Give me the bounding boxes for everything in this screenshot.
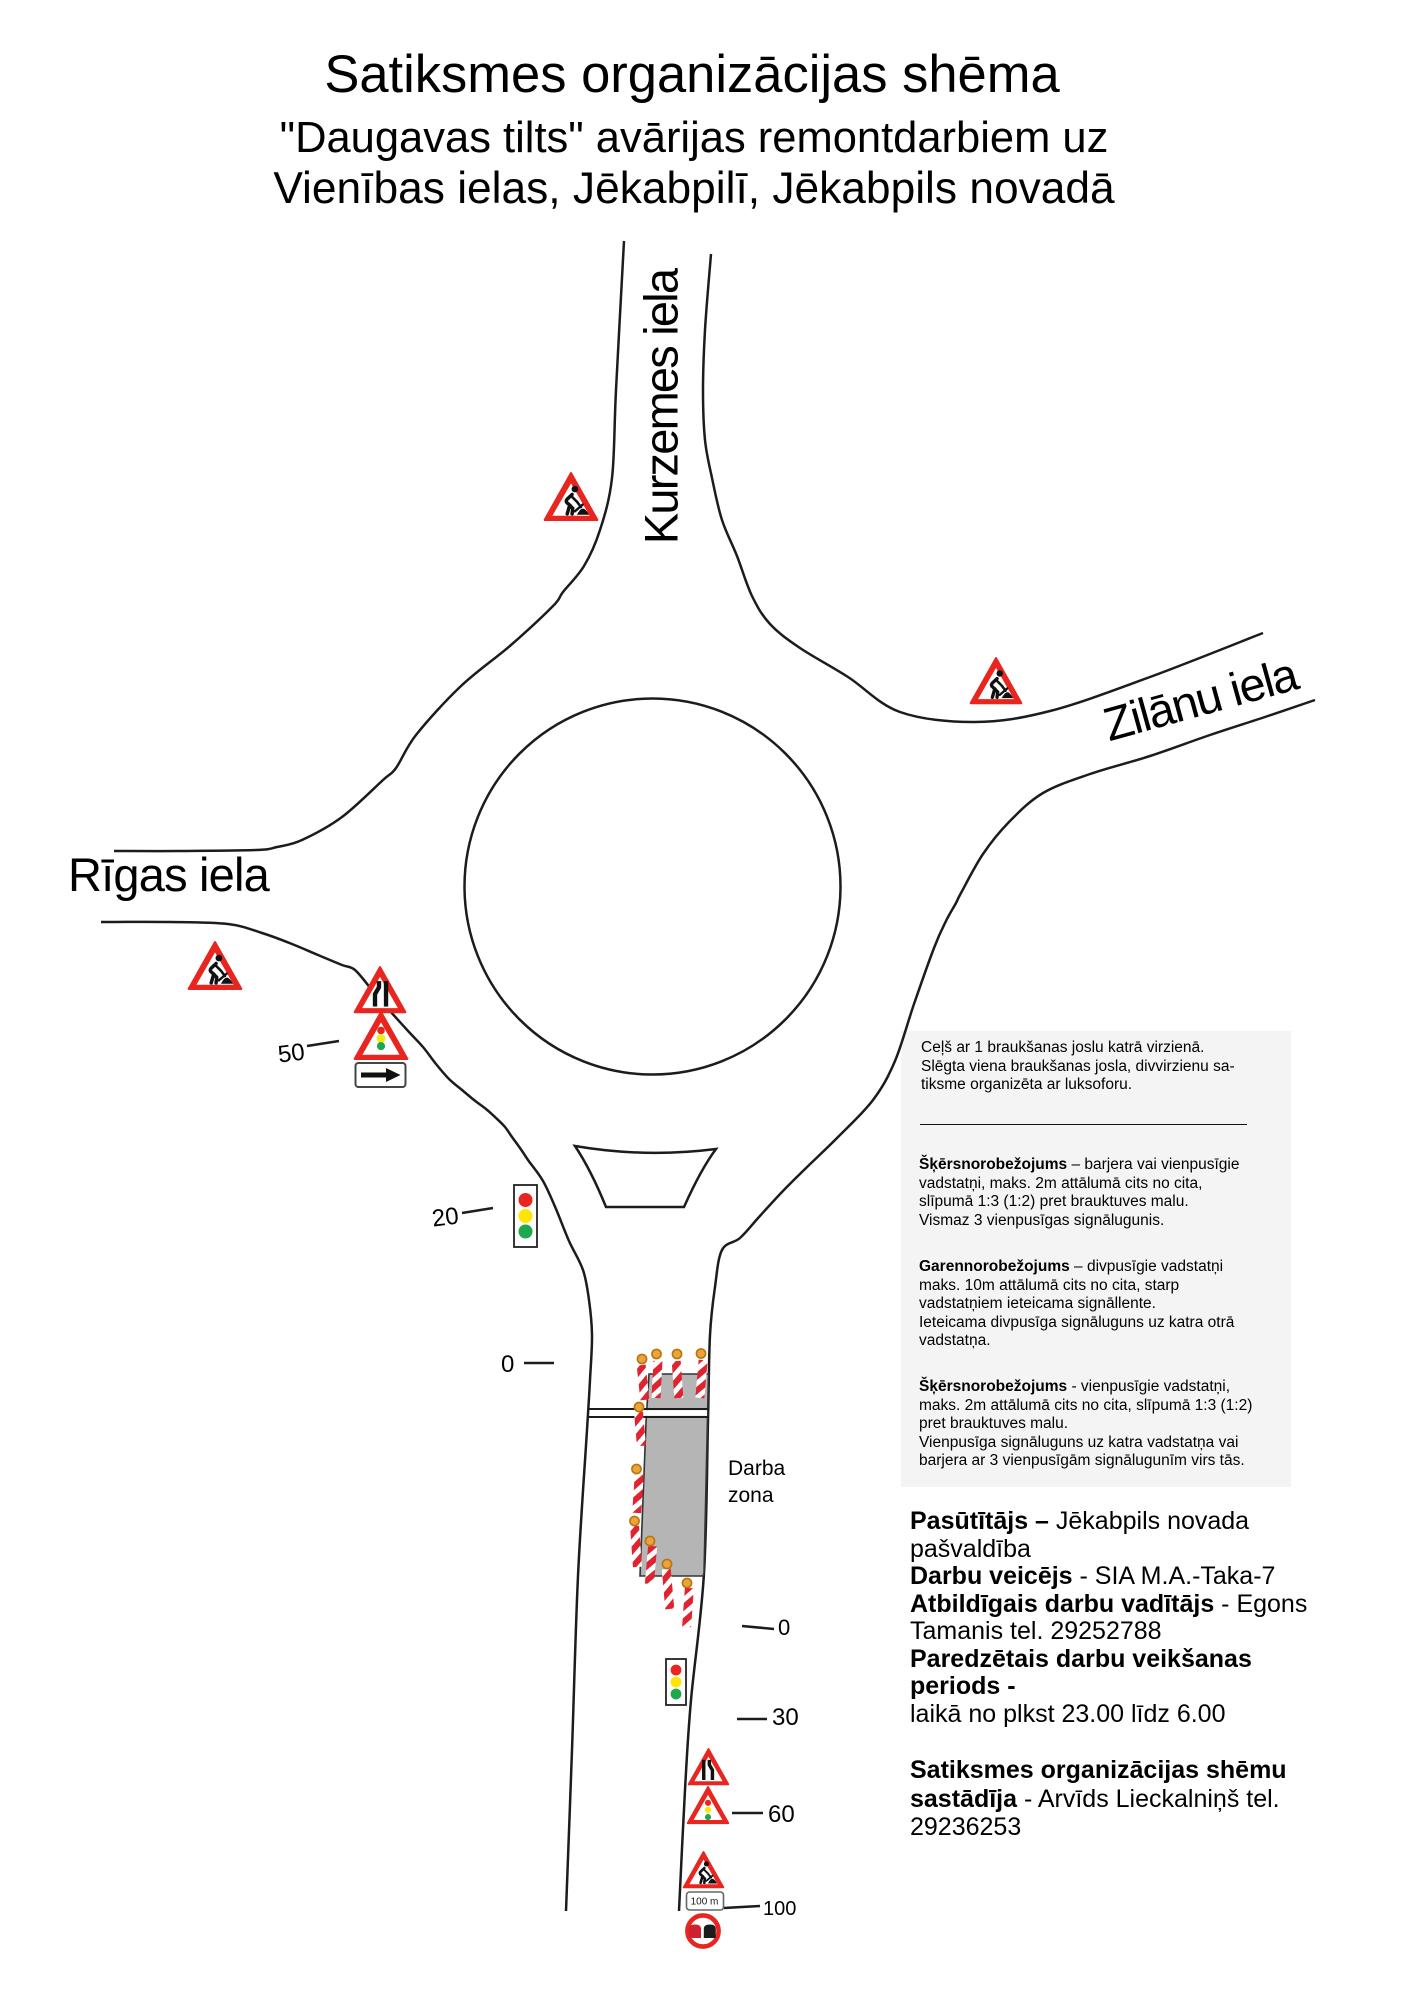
svg-text:100 m: 100 m	[691, 1897, 719, 1908]
